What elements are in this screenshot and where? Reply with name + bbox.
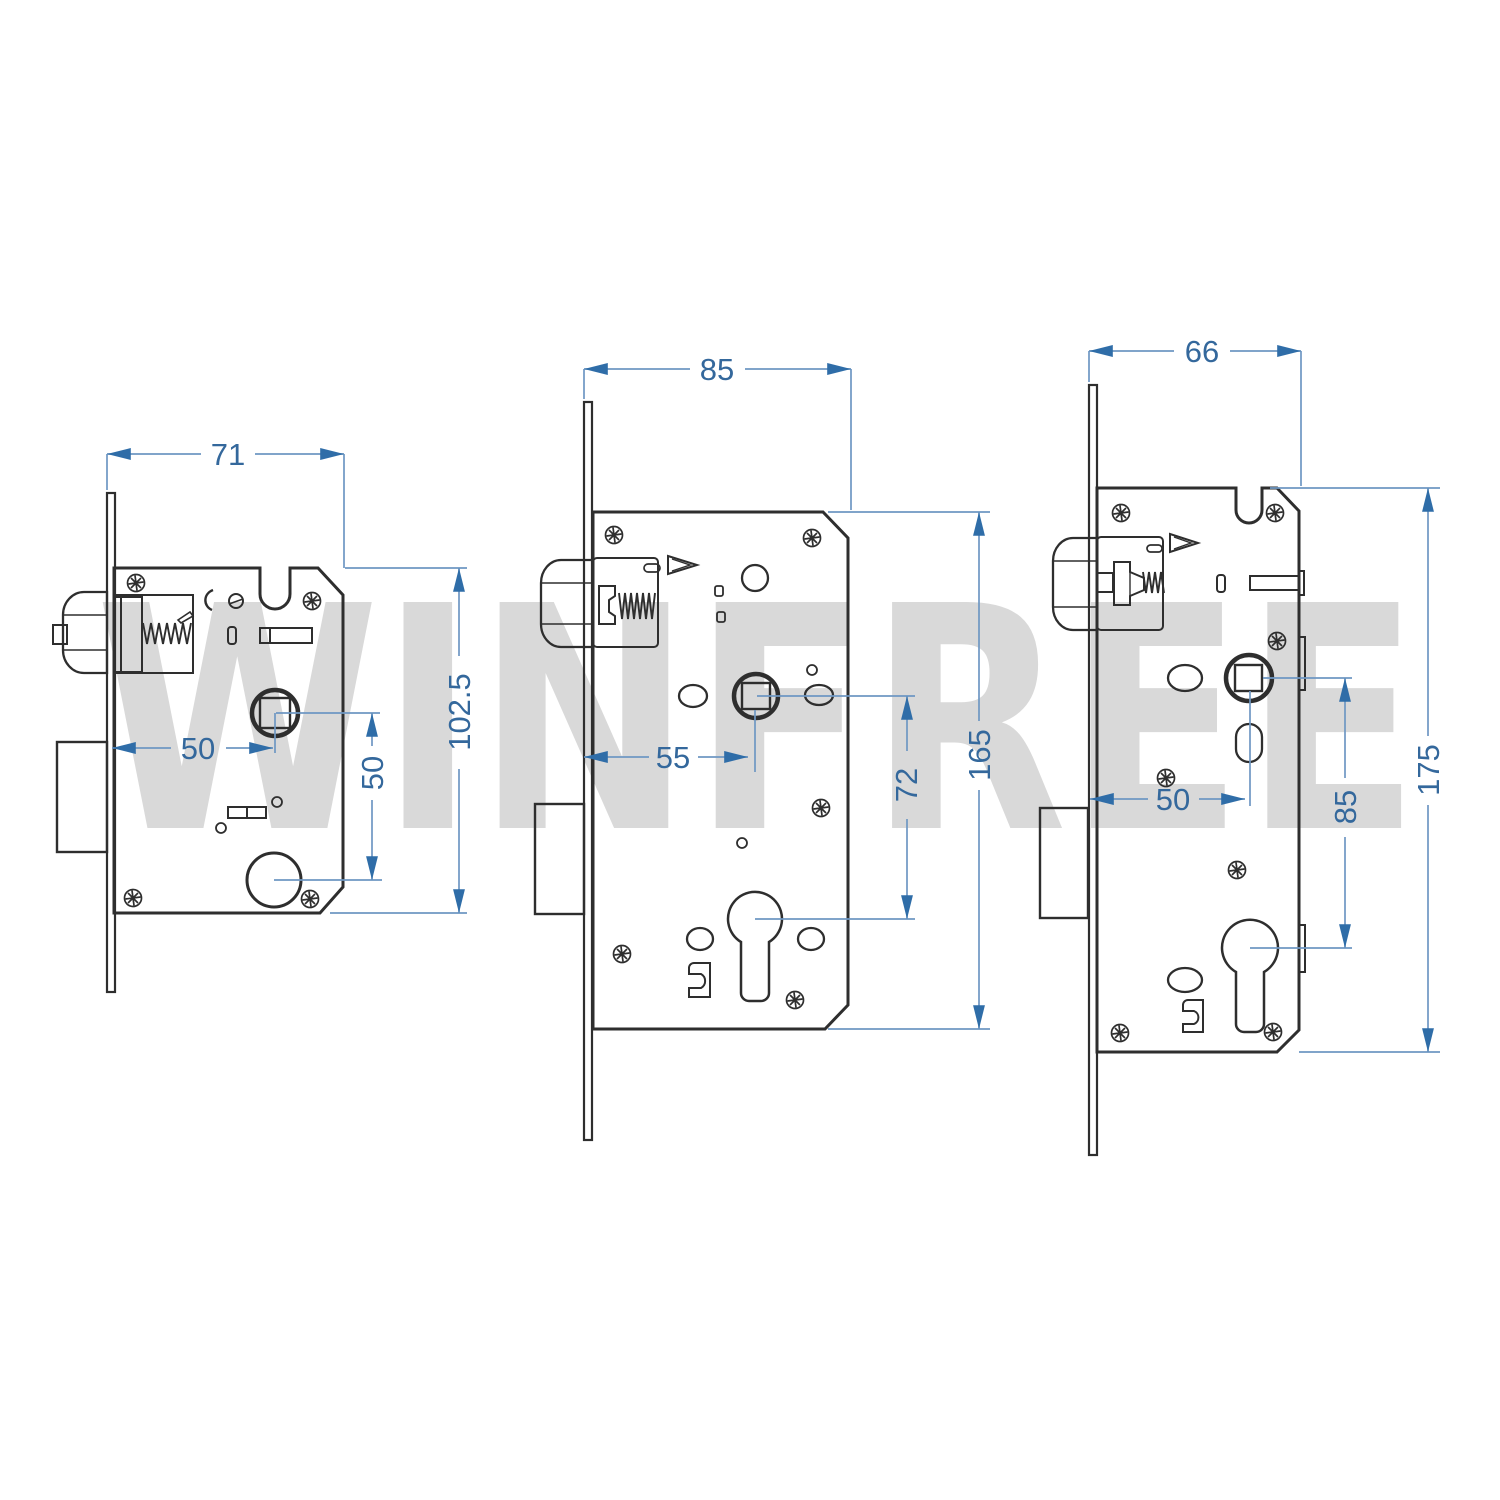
- dim-left-width: 71: [211, 437, 245, 472]
- dim-middle-spacing: 72: [889, 768, 924, 802]
- dim-middle-height: 165: [962, 729, 997, 781]
- lock-right-cylinder-hole: [1222, 920, 1278, 1032]
- dim-right-backset: 50: [1156, 782, 1190, 817]
- dim-middle-width: 85: [700, 352, 734, 387]
- dim-right-width: 66: [1185, 334, 1219, 369]
- lock-middle-cylinder-hole: [728, 892, 782, 1001]
- dim-right-spacing: 85: [1328, 790, 1363, 824]
- technical-drawing-page: WINFREE: [0, 0, 1500, 1500]
- lock-right-hook-cutout: [1183, 1000, 1203, 1032]
- lock-middle-hook-cutout: [689, 963, 710, 997]
- dim-left-spacing: 50: [355, 756, 390, 790]
- mortise-lock-diagram: WINFREE: [0, 0, 1500, 1500]
- dim-left-backset: 50: [181, 731, 215, 766]
- dim-left-height: 102.5: [442, 673, 477, 751]
- dim-right-height: 175: [1411, 744, 1446, 796]
- watermark-text: WINFREE: [95, 541, 1420, 902]
- dim-middle-backset: 55: [656, 740, 690, 775]
